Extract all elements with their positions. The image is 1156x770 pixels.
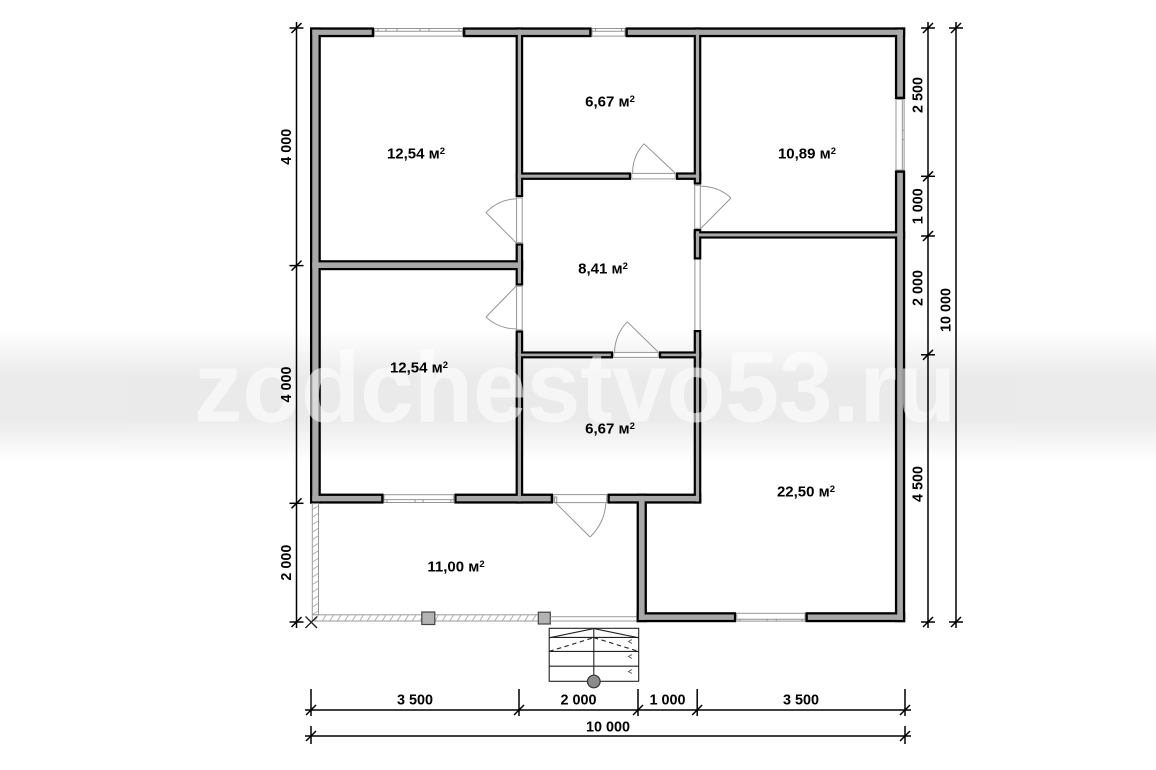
svg-text:10 000: 10 000 [586,719,630,736]
svg-text:2 500: 2 500 [910,77,927,113]
svg-text:2 000: 2 000 [561,692,597,709]
svg-text:4 000: 4 000 [278,367,295,403]
svg-text:12,54 м2: 12,54 м2 [387,146,445,163]
svg-text:1 000: 1 000 [910,188,927,224]
svg-text:6,67 м2: 6,67 м2 [585,421,635,438]
svg-text:22,50 м2: 22,50 м2 [777,484,835,501]
svg-text:10,89 м2: 10,89 м2 [778,146,836,163]
svg-text:zodchestvo53.ru: zodchestvo53.ru [194,332,956,444]
svg-text:10 000: 10 000 [938,288,955,332]
svg-text:8,41 м2: 8,41 м2 [578,261,628,278]
svg-text:3 500: 3 500 [783,692,819,709]
svg-text:3 500: 3 500 [397,692,433,709]
svg-text:6,67 м2: 6,67 м2 [585,94,635,111]
svg-text:11,00 м2: 11,00 м2 [427,559,484,576]
svg-text:4 000: 4 000 [278,129,295,165]
svg-text:2 000: 2 000 [910,270,927,306]
svg-text:4 500: 4 500 [910,466,927,502]
svg-text:1 000: 1 000 [650,692,686,709]
svg-text:2 000: 2 000 [278,545,295,581]
svg-text:12,54 м2: 12,54 м2 [390,360,448,377]
